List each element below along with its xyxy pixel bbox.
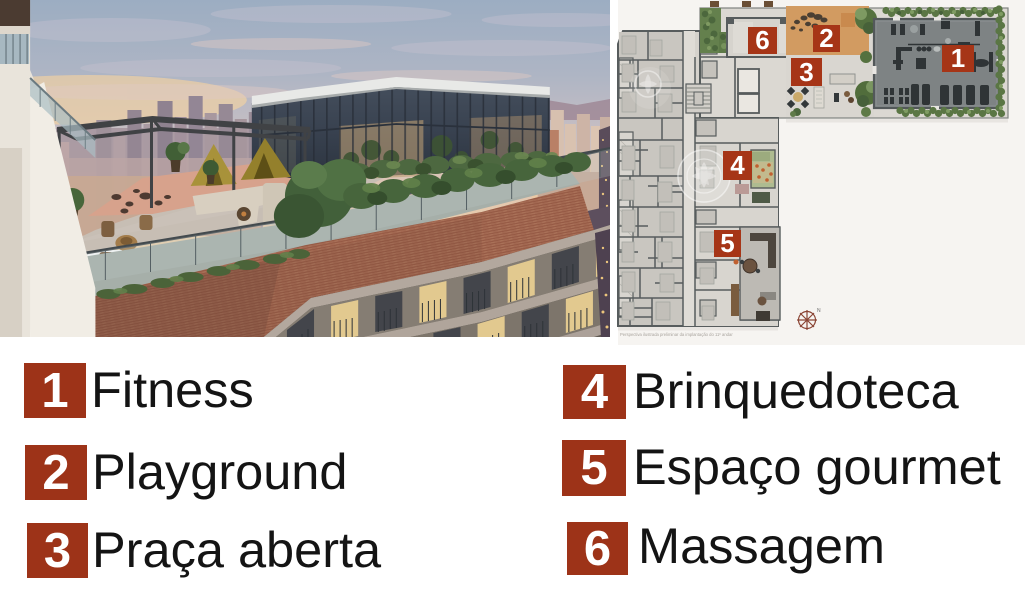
svg-text:2: 2 [819,23,833,53]
svg-text:4: 4 [730,150,745,180]
svg-text:5: 5 [720,228,734,258]
svg-text:Perspectiva ilustrada prelimin: Perspectiva ilustrada preliminar da impl… [620,332,733,337]
svg-text:3: 3 [799,57,813,87]
svg-text:6: 6 [755,25,769,55]
svg-text:1: 1 [951,43,965,73]
svg-text:N: N [817,308,821,314]
